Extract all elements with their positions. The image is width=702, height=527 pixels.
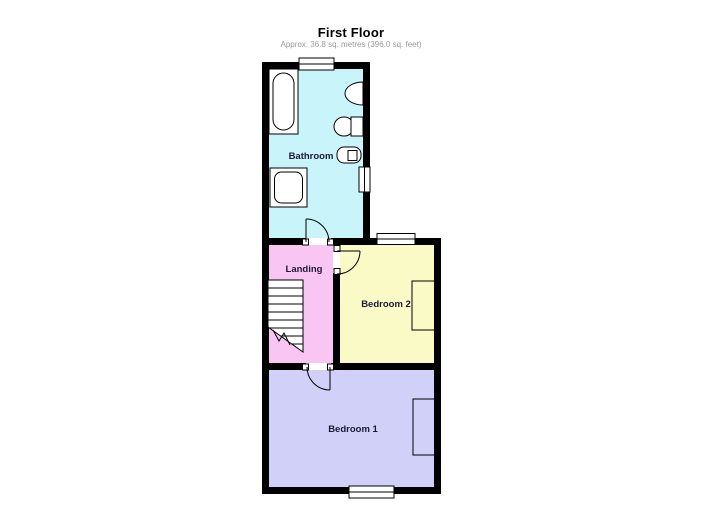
wall-bedroom1-top-right [331,363,441,370]
bedroom2-label: Bedroom 2 [361,299,411,310]
landing-label: Landing [286,264,323,275]
wall-landing-bedroom2 [333,273,340,370]
sink-unit [337,147,361,163]
shower-tray [270,168,307,207]
wall-bedroom1-top-left [262,363,306,370]
toilet [334,117,363,136]
bathroom-right-window [359,167,370,192]
bedroom1-bottom-window [349,486,394,498]
wall-left [262,62,269,494]
bedroom2-top-window [377,234,415,245]
bathroom-door-jamb-right [328,239,334,245]
floorplan-drawing: Bathroom Landing Bedroom 2 Bedroom 1 [0,0,702,527]
bedroom1-label: Bedroom 1 [328,424,378,435]
wall-mid-left [262,238,306,245]
wall-bathroom-right [363,62,370,245]
bedroom1-door-jamb-left [303,364,309,370]
bathroom-label: Bathroom [289,151,334,162]
bathtub [269,69,298,134]
bathroom-top-window [299,58,334,70]
floorplan-page: First Floor Approx. 36.8 sq. metres (396… [0,0,702,527]
